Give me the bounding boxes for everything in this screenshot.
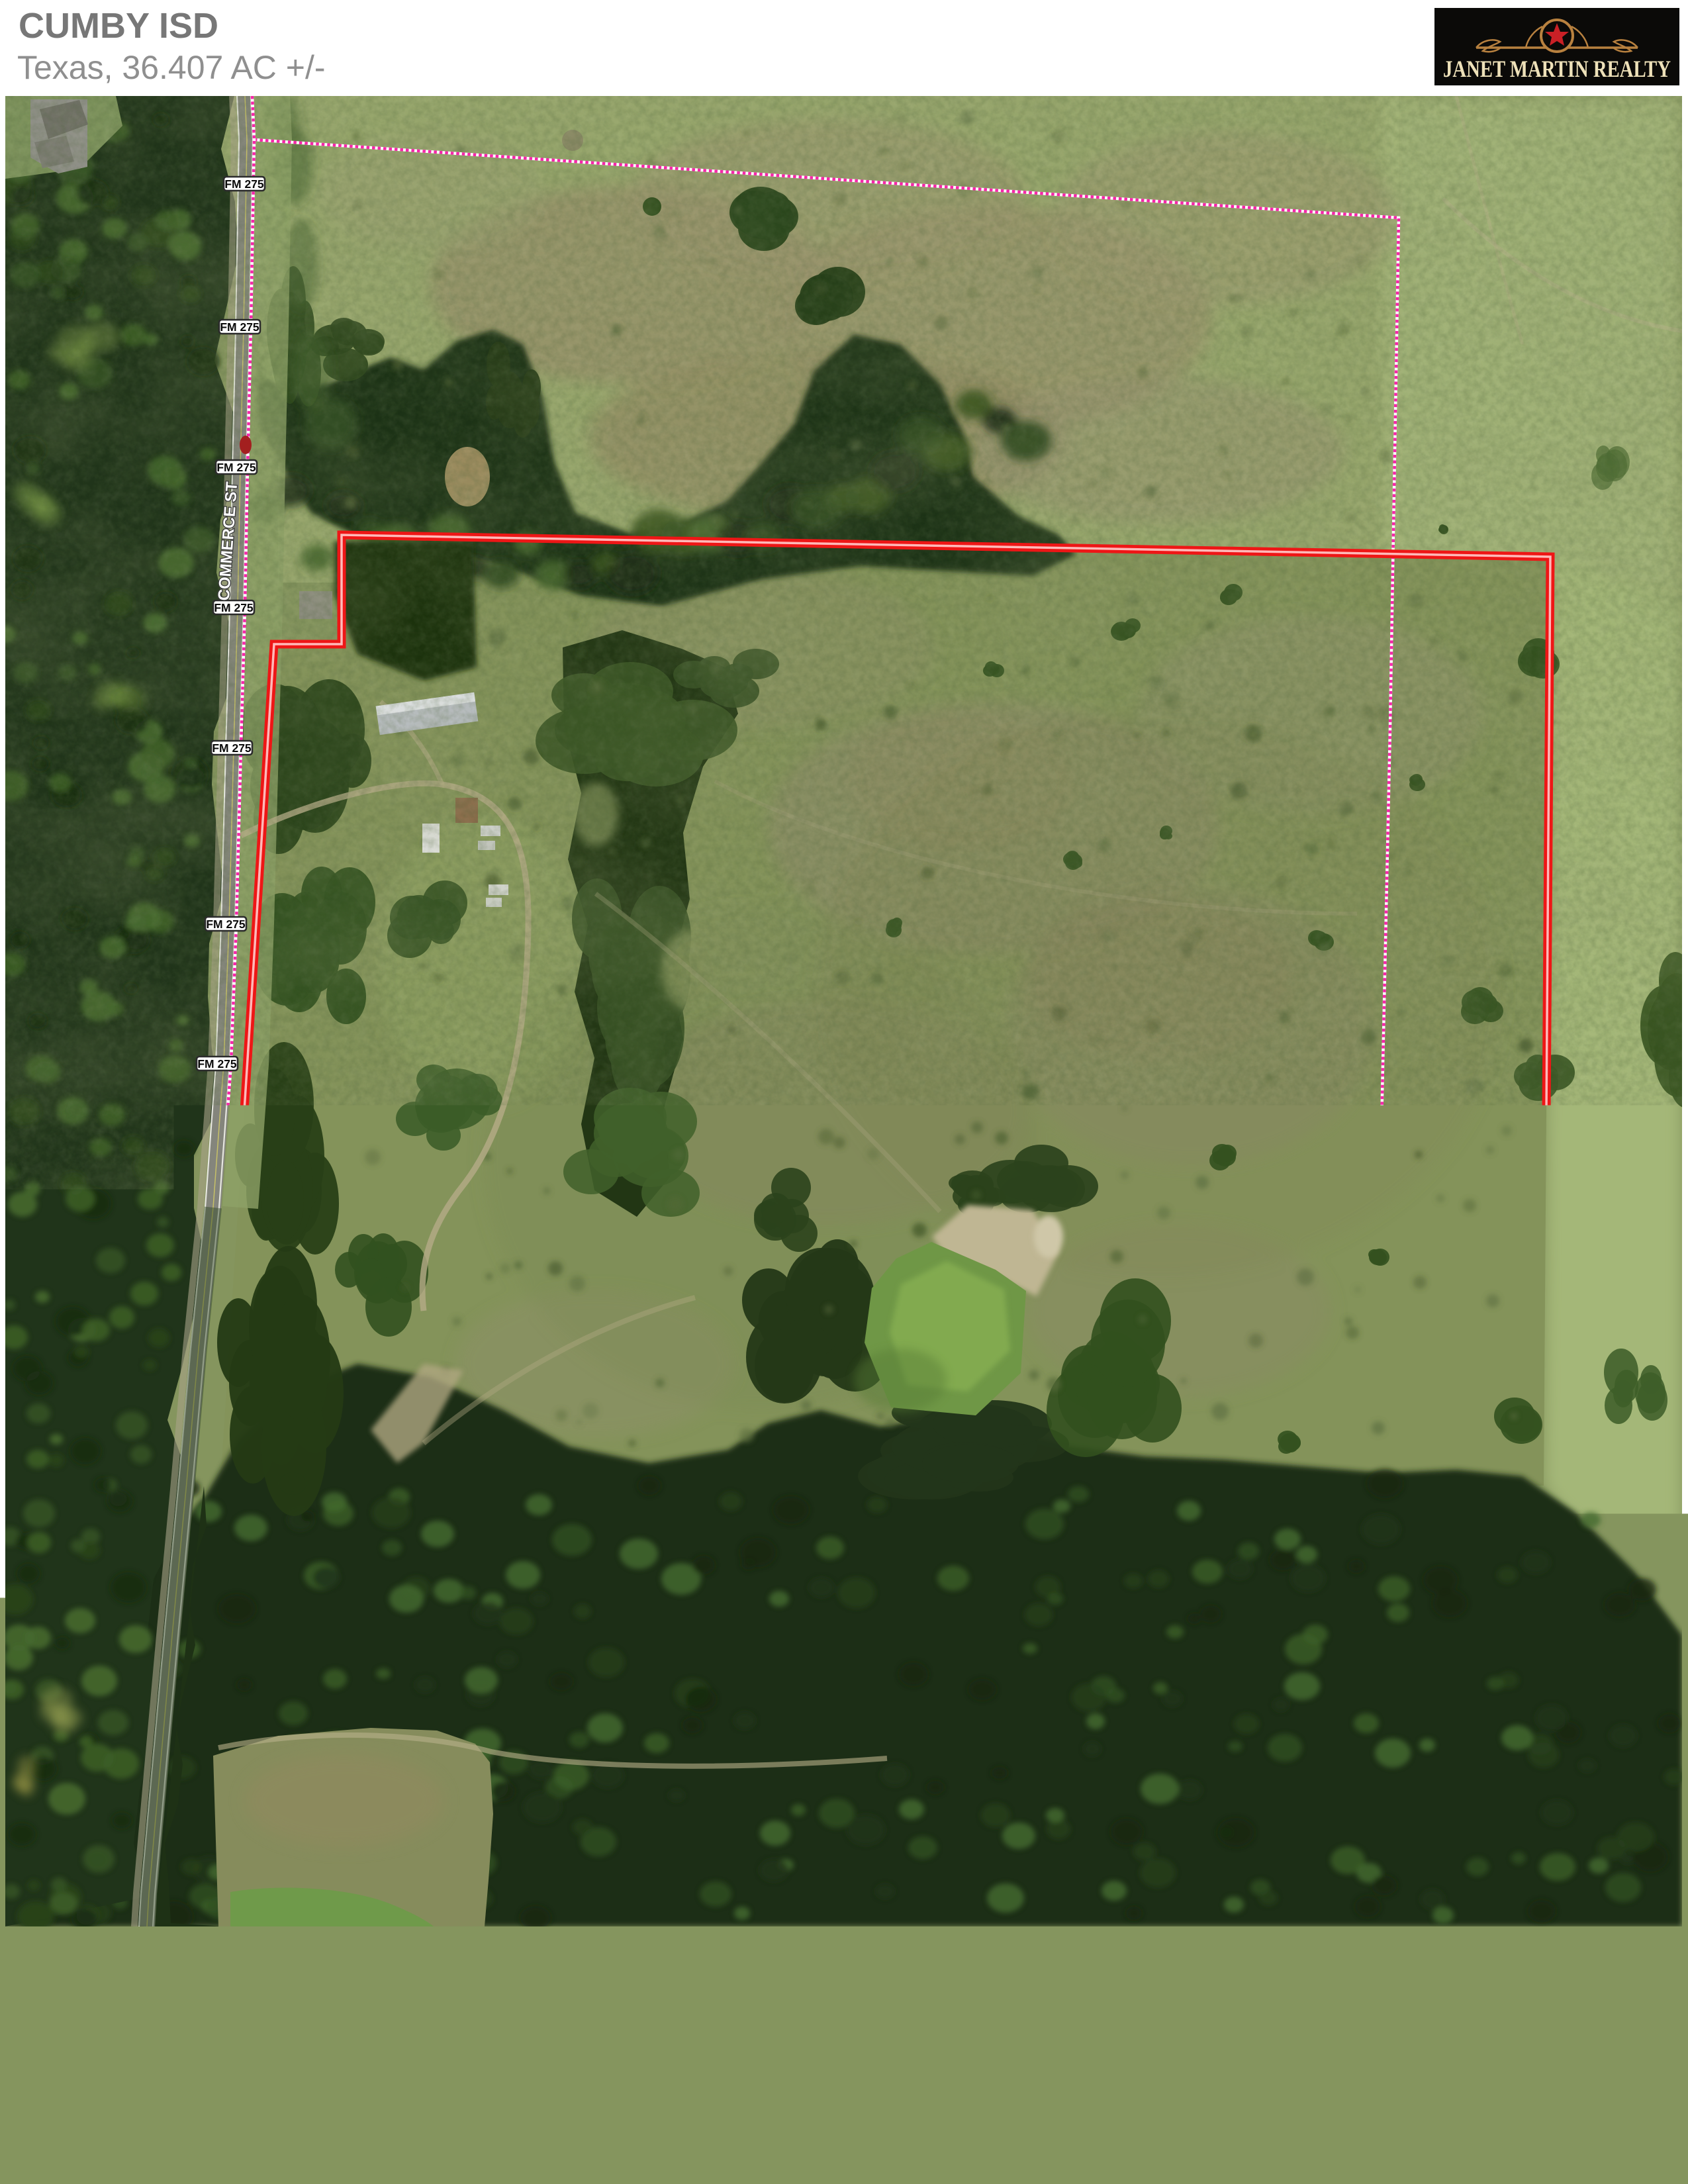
svg-text:CUMBY ISD: CUMBY ISD [19,6,218,46]
svg-text:FM 275: FM 275 [171,1342,211,1355]
svg-text:FM 275: FM 275 [197,1057,237,1070]
svg-text:Janet Martin: Janet Martin [10,2111,166,2140]
svg-text:FM 275: FM 275 [147,1622,187,1635]
svg-text:FM 275: FM 275 [135,1760,175,1774]
svg-text:FM 275: FM 275 [216,461,256,474]
svg-text:FM 275: FM 275 [186,1201,226,1214]
svg-text:Boundary: Boundary [66,1965,132,1982]
svg-text:as to the completeness or accu: as to the completeness or accuracy there… [1282,2161,1526,2175]
svg-text:www.janetmartinrealty.com: www.janetmartinrealty.com [262,2143,569,2171]
svg-text:FM 275: FM 275 [124,1911,164,1924]
svg-text:FM 275: FM 275 [206,918,246,931]
svg-text:P: 903-885-1234: P: 903-885-1234 [10,2143,203,2171]
svg-text:The information contained here: The information contained herein was obt… [1282,2112,1571,2126]
svg-text:FM 275: FM 275 [214,601,254,614]
svg-text:M: M [1224,2117,1266,2173]
svg-text:sources deemed to be reliable.: sources deemed to be reliable. [1282,2128,1454,2142]
svg-text:1325 S. Broadway, Sulphur Spri: 1325 S. Broadway, Sulphur Springs, TX [637,2143,1092,2171]
svg-text:FM 275: FM 275 [224,177,264,191]
svg-text:JANET MARTIN REALTY: JANET MARTIN REALTY [1443,56,1671,82]
svg-text:MapRight Services makes no war: MapRight Services makes no warranties or… [1287,2145,1593,2159]
svg-text:FM 275: FM 275 [160,1483,199,1496]
svg-text:FM 275: FM 275 [212,741,252,755]
svg-text:Texas, 36.407 AC +/-: Texas, 36.407 AC +/- [17,49,326,86]
svg-text:FM 275: FM 275 [220,320,259,334]
